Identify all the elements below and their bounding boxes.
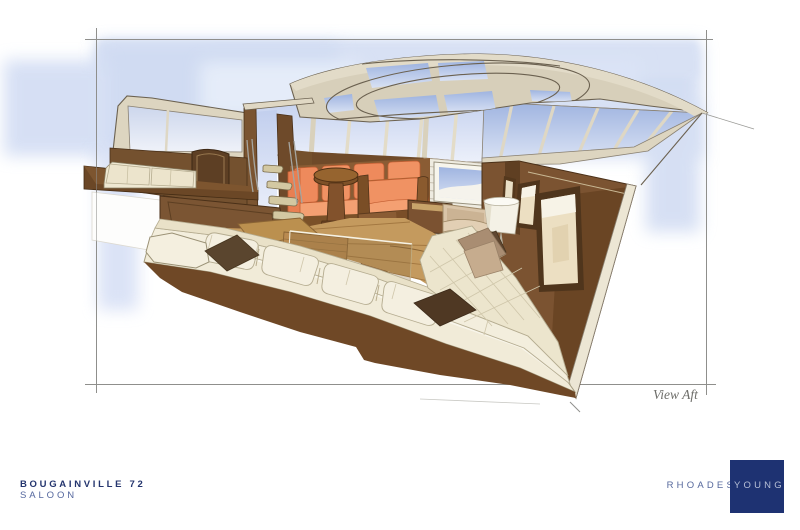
- svg-text:View Aft: View Aft: [653, 387, 699, 402]
